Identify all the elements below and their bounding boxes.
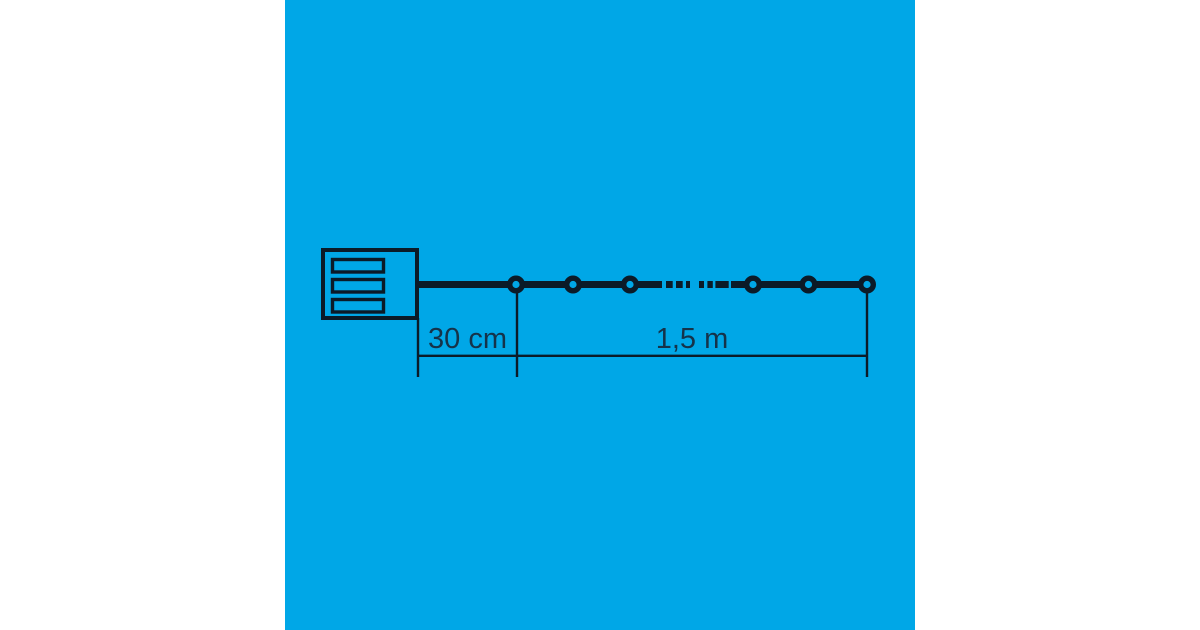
usb-contact-bar-1 — [333, 260, 384, 273]
usb-connector — [323, 250, 417, 318]
page-background: 30 cm 1,5 m — [0, 0, 1200, 630]
lead-length-label: 30 cm — [428, 323, 507, 355]
chain-length-label: 1,5 m — [656, 323, 729, 355]
usb-contact-bar-3 — [333, 300, 384, 313]
led-bulb-6 — [861, 278, 874, 291]
led-bulb-2 — [567, 278, 580, 291]
led-bulb-5 — [802, 278, 815, 291]
led-bulb-1 — [510, 278, 523, 291]
blue-panel: 30 cm 1,5 m — [285, 0, 915, 630]
light-chain-diagram: 30 cm 1,5 m — [285, 0, 915, 630]
led-bulb-3 — [624, 278, 637, 291]
led-bulb-4 — [747, 278, 760, 291]
usb-contact-bar-2 — [333, 280, 384, 293]
